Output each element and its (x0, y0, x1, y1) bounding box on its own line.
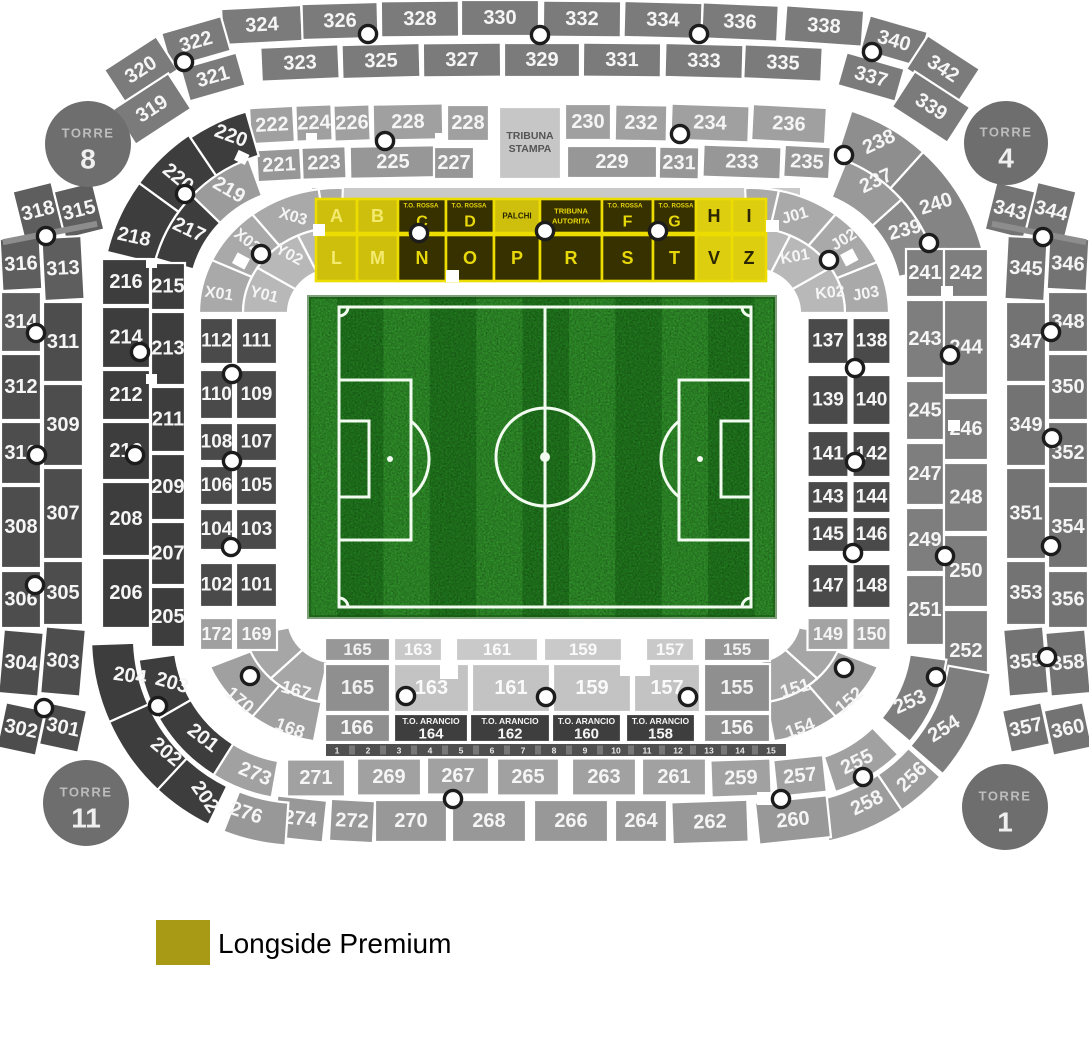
svg-text:140: 140 (856, 390, 888, 411)
svg-text:6: 6 (490, 746, 495, 756)
svg-text:351: 351 (1009, 503, 1042, 525)
svg-text:13: 13 (704, 746, 714, 756)
svg-text:224: 224 (297, 111, 332, 134)
svg-text:T.O. ROSSA: T.O. ROSSA (451, 203, 487, 210)
svg-text:159: 159 (575, 677, 608, 699)
svg-text:231: 231 (662, 152, 696, 175)
svg-text:346: 346 (1051, 252, 1085, 276)
svg-text:262: 262 (693, 810, 727, 833)
svg-text:A: A (330, 206, 343, 226)
svg-text:161: 161 (483, 640, 511, 659)
svg-text:157: 157 (656, 640, 684, 659)
svg-text:TORRE: TORRE (60, 785, 113, 800)
svg-text:I: I (746, 206, 751, 226)
svg-text:207: 207 (151, 543, 184, 565)
svg-text:O: O (463, 248, 477, 268)
svg-text:235: 235 (790, 150, 824, 174)
svg-text:150: 150 (856, 624, 886, 644)
svg-text:162: 162 (497, 726, 522, 743)
svg-text:243: 243 (908, 328, 941, 350)
svg-text:11: 11 (643, 746, 652, 756)
svg-text:V: V (708, 248, 720, 268)
svg-text:149: 149 (813, 624, 843, 644)
svg-text:STAMPA: STAMPA (509, 143, 552, 155)
svg-text:108: 108 (201, 432, 233, 453)
svg-text:M: M (370, 248, 385, 268)
svg-text:112: 112 (201, 331, 232, 352)
svg-text:145: 145 (812, 524, 844, 545)
svg-text:AUTORITA: AUTORITA (552, 217, 591, 226)
svg-text:330: 330 (483, 7, 516, 29)
svg-text:248: 248 (949, 487, 982, 509)
svg-text:B: B (371, 206, 384, 226)
svg-text:156: 156 (720, 717, 753, 739)
svg-text:263: 263 (587, 766, 620, 788)
svg-text:213: 213 (151, 338, 184, 360)
svg-text:347: 347 (1009, 331, 1042, 353)
svg-text:249: 249 (908, 529, 941, 551)
svg-text:Z: Z (744, 248, 755, 268)
svg-text:G: G (668, 214, 680, 231)
svg-text:TORRE: TORRE (62, 126, 115, 141)
svg-text:336: 336 (723, 10, 757, 33)
svg-text:15: 15 (766, 746, 776, 756)
svg-text:232: 232 (624, 112, 658, 135)
svg-text:141: 141 (812, 444, 844, 465)
svg-text:147: 147 (812, 576, 844, 597)
svg-text:216: 216 (109, 271, 142, 293)
svg-text:334: 334 (646, 9, 681, 32)
svg-text:211: 211 (152, 409, 184, 431)
svg-text:TORRE: TORRE (980, 125, 1033, 140)
svg-text:K02: K02 (815, 283, 846, 303)
svg-text:208: 208 (109, 508, 142, 530)
svg-text:H: H (708, 206, 721, 226)
svg-text:331: 331 (605, 49, 639, 71)
svg-text:160: 160 (574, 726, 599, 743)
svg-text:146: 146 (856, 524, 888, 545)
svg-text:4: 4 (998, 143, 1014, 174)
svg-text:228: 228 (451, 112, 484, 134)
svg-text:110: 110 (201, 384, 232, 405)
svg-text:221: 221 (262, 153, 296, 177)
svg-text:103: 103 (241, 519, 273, 540)
svg-text:102: 102 (201, 575, 233, 596)
svg-text:265: 265 (511, 766, 544, 788)
svg-text:7: 7 (521, 746, 526, 756)
svg-text:233: 233 (725, 150, 759, 173)
svg-text:329: 329 (525, 49, 558, 71)
svg-text:14: 14 (735, 746, 745, 756)
svg-text:158: 158 (648, 726, 673, 743)
svg-text:338: 338 (807, 14, 842, 38)
svg-text:143: 143 (812, 487, 844, 508)
svg-text:2: 2 (366, 746, 371, 756)
svg-text:10: 10 (611, 746, 621, 756)
svg-text:TRIBUNA: TRIBUNA (554, 207, 588, 216)
svg-text:230: 230 (571, 111, 604, 133)
svg-text:101: 101 (241, 575, 273, 596)
svg-text:T.O. ARANCIO: T.O. ARANCIO (632, 716, 690, 726)
svg-text:305: 305 (46, 582, 79, 604)
svg-text:T.O. ARANCIO: T.O. ARANCIO (558, 716, 616, 726)
svg-text:259: 259 (724, 766, 758, 789)
svg-text:D: D (464, 214, 476, 231)
svg-text:215: 215 (151, 276, 184, 298)
svg-text:PALCHI: PALCHI (502, 212, 531, 221)
svg-text:236: 236 (772, 112, 806, 136)
svg-text:T.O. ROSSA: T.O. ROSSA (658, 203, 694, 210)
svg-text:105: 105 (241, 475, 273, 496)
svg-text:309: 309 (46, 414, 79, 436)
svg-text:159: 159 (569, 640, 597, 659)
svg-text:172: 172 (201, 624, 231, 644)
svg-text:T.O. ROSSA: T.O. ROSSA (403, 203, 439, 210)
svg-text:324: 324 (245, 13, 280, 37)
svg-text:252: 252 (949, 640, 982, 662)
svg-text:F: F (623, 214, 633, 231)
svg-text:223: 223 (307, 151, 341, 174)
svg-text:T.O. ARANCIO: T.O. ARANCIO (402, 716, 460, 726)
svg-text:350: 350 (1051, 376, 1084, 398)
svg-text:316: 316 (4, 252, 38, 276)
svg-text:206: 206 (109, 582, 142, 604)
svg-text:356: 356 (1051, 589, 1084, 611)
svg-text:328: 328 (403, 8, 437, 30)
svg-text:228: 228 (391, 111, 425, 134)
svg-text:N: N (416, 248, 429, 268)
svg-text:272: 272 (335, 809, 369, 833)
svg-text:164: 164 (418, 726, 444, 743)
svg-text:222: 222 (255, 113, 289, 137)
svg-text:111: 111 (242, 331, 272, 352)
svg-text:312: 312 (4, 376, 37, 398)
svg-text:137: 137 (812, 331, 844, 352)
svg-text:163: 163 (415, 677, 448, 699)
svg-text:303: 303 (45, 649, 80, 674)
svg-text:271: 271 (299, 767, 332, 789)
svg-text:212: 212 (109, 384, 142, 406)
svg-text:353: 353 (1009, 582, 1042, 604)
svg-text:Longside Premium: Longside Premium (218, 928, 451, 959)
svg-text:104: 104 (201, 519, 233, 540)
svg-text:148: 148 (856, 576, 888, 597)
svg-text:266: 266 (554, 810, 587, 832)
svg-text:T.O. ROSSA: T.O. ROSSA (607, 203, 643, 210)
svg-text:270: 270 (394, 810, 427, 832)
svg-text:308: 308 (4, 516, 37, 538)
svg-text:T: T (669, 248, 680, 268)
svg-text:9: 9 (583, 746, 588, 756)
svg-text:326: 326 (323, 10, 357, 33)
svg-text:163: 163 (404, 640, 432, 659)
svg-text:323: 323 (283, 51, 317, 74)
svg-text:205: 205 (151, 606, 184, 628)
svg-text:241: 241 (908, 262, 941, 284)
svg-text:226: 226 (335, 111, 369, 134)
svg-text:268: 268 (472, 810, 505, 832)
svg-text:11: 11 (71, 803, 101, 834)
svg-text:250: 250 (949, 560, 982, 582)
svg-text:264: 264 (624, 810, 658, 832)
svg-text:P: P (511, 248, 523, 268)
svg-text:1: 1 (997, 807, 1013, 838)
svg-text:T.O. ARANCIO: T.O. ARANCIO (481, 716, 539, 726)
svg-text:165: 165 (341, 677, 374, 699)
svg-text:TRIBUNA: TRIBUNA (506, 130, 554, 142)
svg-text:333: 333 (687, 50, 721, 73)
svg-text:304: 304 (3, 651, 39, 676)
svg-text:327: 327 (445, 49, 479, 71)
svg-text:261: 261 (657, 766, 690, 788)
svg-text:242: 242 (949, 262, 982, 284)
svg-text:8: 8 (552, 746, 557, 756)
svg-text:325: 325 (364, 50, 398, 73)
svg-text:257: 257 (782, 763, 817, 788)
svg-text:225: 225 (376, 151, 410, 174)
svg-text:234: 234 (693, 111, 728, 134)
svg-text:3: 3 (397, 746, 402, 756)
svg-text:251: 251 (908, 599, 941, 621)
svg-text:TORRE: TORRE (979, 789, 1032, 804)
svg-text:109: 109 (241, 384, 273, 405)
svg-text:139: 139 (812, 390, 844, 411)
svg-text:S: S (621, 248, 633, 268)
svg-text:161: 161 (494, 677, 527, 699)
svg-text:335: 335 (766, 51, 800, 74)
svg-text:267: 267 (441, 765, 474, 787)
svg-text:345: 345 (1009, 257, 1043, 281)
svg-text:4: 4 (428, 746, 433, 756)
svg-text:144: 144 (856, 487, 888, 508)
svg-text:313: 313 (46, 257, 80, 281)
svg-text:227: 227 (437, 152, 470, 174)
svg-text:247: 247 (908, 463, 941, 485)
svg-text:155: 155 (720, 677, 753, 699)
svg-text:L: L (331, 248, 342, 268)
svg-text:332: 332 (565, 8, 599, 30)
svg-text:349: 349 (1009, 414, 1042, 436)
svg-text:229: 229 (595, 151, 628, 173)
svg-text:169: 169 (241, 624, 271, 644)
svg-text:107: 107 (241, 432, 273, 453)
svg-text:12: 12 (673, 746, 683, 756)
svg-text:R: R (565, 248, 578, 268)
svg-text:138: 138 (856, 331, 888, 352)
svg-text:165: 165 (343, 640, 371, 659)
svg-text:269: 269 (372, 766, 405, 788)
svg-text:8: 8 (80, 144, 96, 175)
svg-text:245: 245 (908, 400, 941, 422)
svg-text:5: 5 (459, 746, 464, 756)
svg-text:155: 155 (723, 640, 751, 659)
svg-text:307: 307 (46, 503, 79, 525)
svg-text:166: 166 (340, 717, 373, 739)
svg-text:311: 311 (47, 331, 79, 353)
svg-text:354: 354 (1051, 516, 1085, 538)
svg-text:209: 209 (151, 476, 184, 498)
svg-text:1: 1 (335, 746, 340, 756)
svg-text:260: 260 (775, 807, 810, 832)
svg-text:106: 106 (201, 475, 233, 496)
